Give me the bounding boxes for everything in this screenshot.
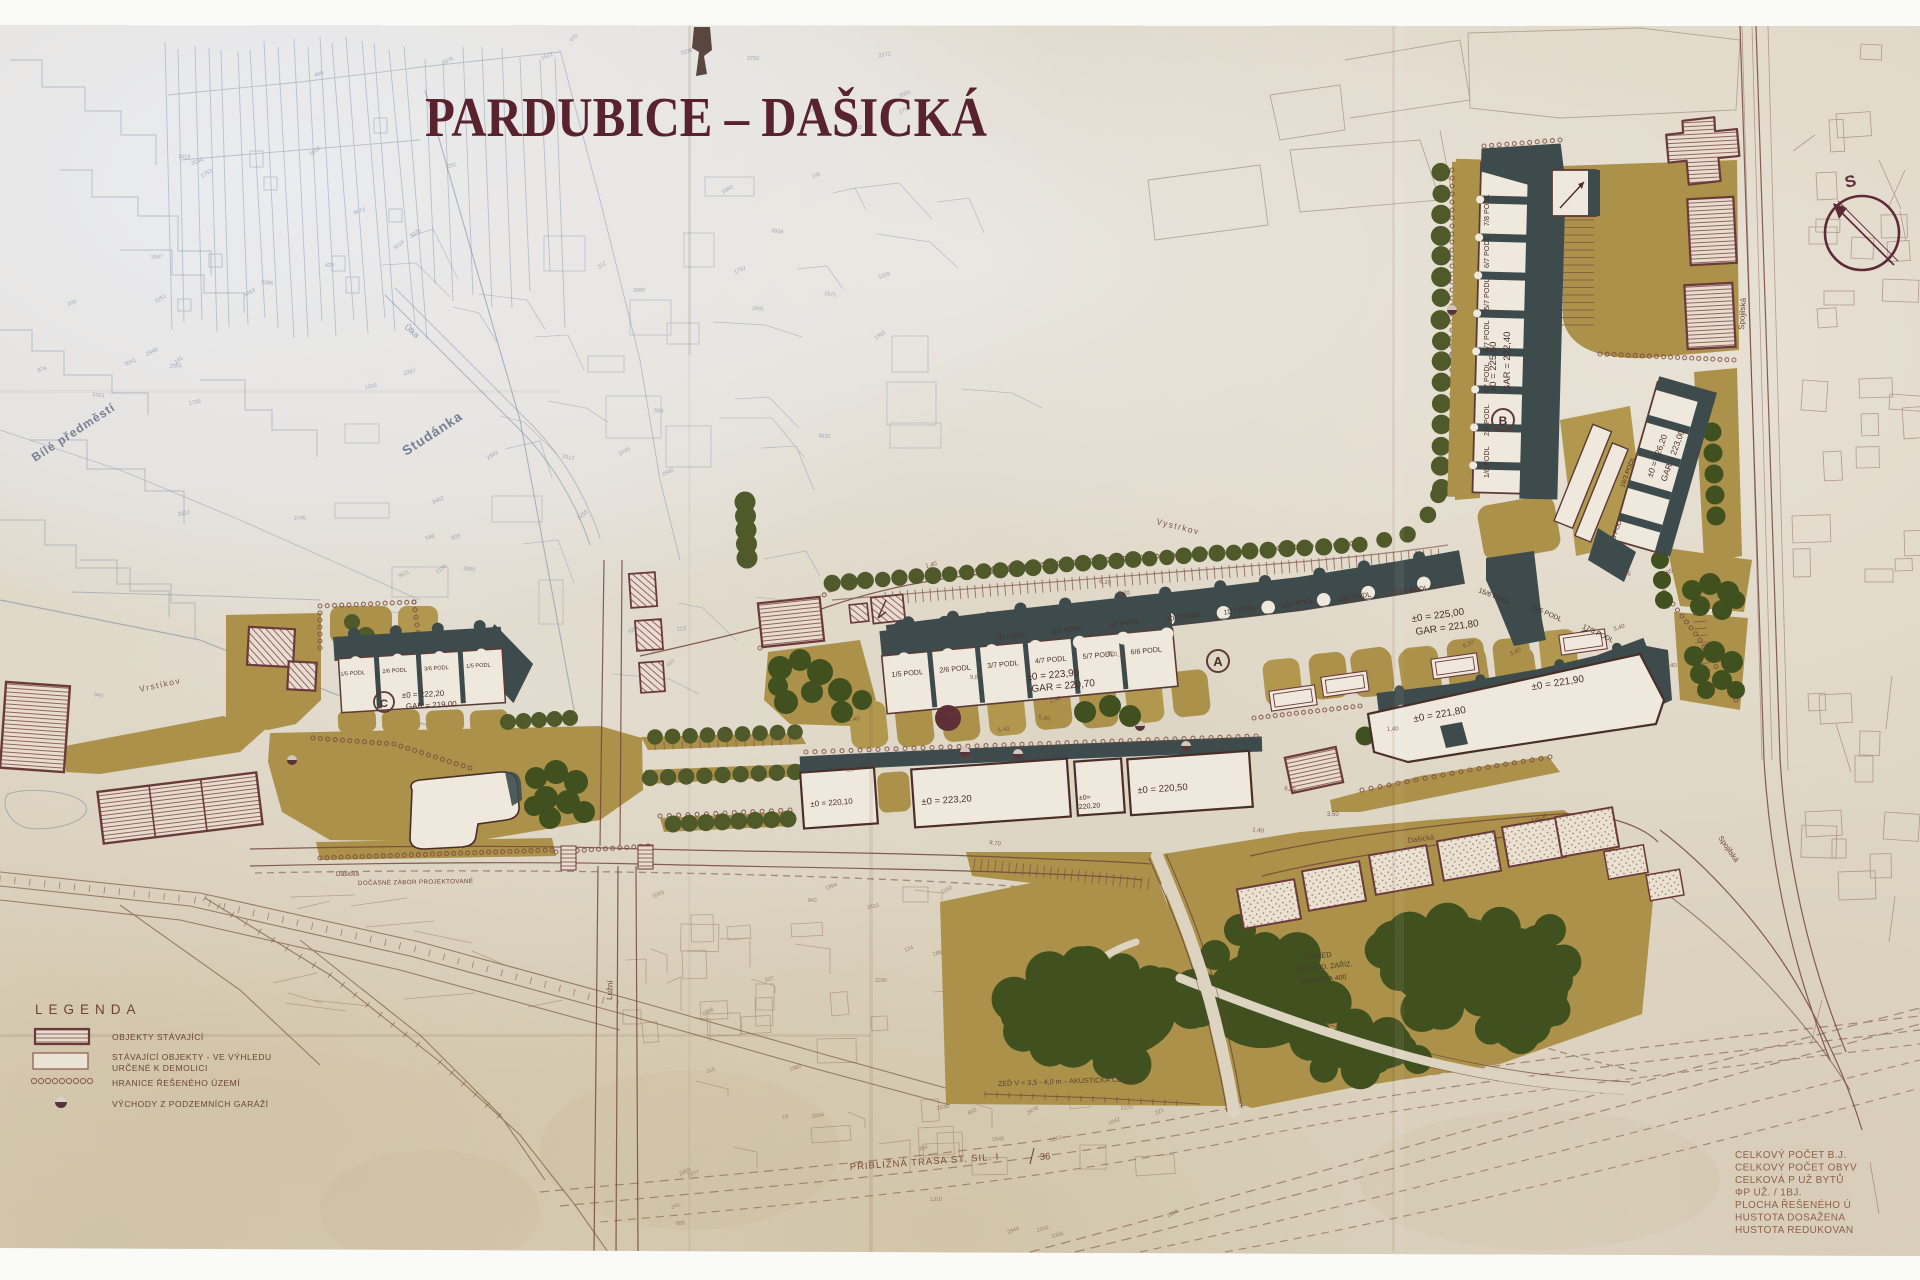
svg-text:LEGENDA: LEGENDA: [35, 1002, 142, 1017]
svg-text:2686: 2686: [633, 288, 645, 294]
svg-text:1/6 PODL: 1/6 PODL: [1482, 446, 1491, 478]
svg-text:2991: 2991: [752, 306, 764, 312]
svg-text:9,85: 9,85: [970, 675, 983, 681]
svg-text:429: 429: [325, 262, 335, 269]
svg-text:HUSTOTA DOSAŽENA: HUSTOTA DOSAŽENA: [1735, 1211, 1846, 1224]
svg-text:2745: 2745: [294, 515, 307, 522]
svg-text:3,50: 3,50: [1327, 812, 1339, 818]
svg-text:URČENÉ K DEMOLICI: URČENÉ K DEMOLICI: [112, 1063, 208, 1073]
svg-text:2547: 2547: [151, 254, 164, 261]
svg-text:PARDUBICE – DAŠICKÁ: PARDUBICE – DAŠICKÁ: [425, 86, 987, 149]
svg-text:1,40: 1,40: [848, 716, 861, 723]
svg-text:B: B: [1499, 414, 1508, 428]
svg-text:Lužní: Lužní: [605, 979, 615, 1000]
svg-text:3/7 PODL: 3/7 PODL: [1482, 362, 1491, 394]
svg-text:PLOCHA ŘEŠENÉHO Ú: PLOCHA ŘEŠENÉHO Ú: [1735, 1198, 1851, 1211]
svg-text:5/7 PODL: 5/7 PODL: [1482, 278, 1491, 310]
svg-text:OBJEKTY STÁVAJÍCÍ: OBJEKTY STÁVAJÍCÍ: [112, 1032, 204, 1042]
svg-text:2/7 PODL: 2/7 PODL: [1482, 404, 1491, 436]
svg-text:6/7 PODL: 6/7 PODL: [1482, 236, 1491, 268]
svg-text:220,20: 220,20: [1079, 803, 1101, 811]
svg-text:9,70: 9,70: [1118, 591, 1130, 597]
svg-text:7/8 PODL: 7/8 PODL: [1482, 194, 1491, 226]
svg-text:CELKOVÝ POČET OBYV: CELKOVÝ POČET OBYV: [1735, 1161, 1857, 1174]
svg-text:1613: 1613: [178, 154, 191, 161]
svg-text:Dašická: Dašická: [336, 871, 360, 878]
svg-text:1,40: 1,40: [1665, 663, 1677, 669]
svg-text:2290: 2290: [875, 978, 887, 984]
svg-text:GAR = 222,40: GAR = 222,40: [1502, 332, 1513, 392]
svg-text:VÝCHODY Z PODZEMNÍCH GARÁŽÍ: VÝCHODY Z PODZEMNÍCH GARÁŽÍ: [112, 1099, 269, 1109]
svg-text:1645: 1645: [992, 1136, 1005, 1143]
svg-text:223: 223: [677, 626, 687, 633]
svg-text:HRANICE ŘEŠENÉHO ÚZEMÍ: HRANICE ŘEŠENÉHO ÚZEMÍ: [112, 1078, 240, 1088]
svg-text:4/7 PODL: 4/7 PODL: [1482, 320, 1491, 352]
svg-text:1310: 1310: [930, 1197, 942, 1203]
svg-text:1423: 1423: [92, 392, 105, 399]
svg-text:3750: 3750: [747, 56, 759, 62]
svg-text:942: 942: [808, 897, 818, 904]
svg-text:HUSTOTA REDUKOVAN: HUSTOTA REDUKOVAN: [1735, 1225, 1854, 1236]
svg-text:±0=: ±0=: [1079, 794, 1091, 802]
svg-text:36: 36: [1039, 1151, 1050, 1163]
svg-text:A: A: [1213, 654, 1223, 669]
svg-text:3,50: 3,50: [1530, 818, 1543, 824]
svg-text:2286: 2286: [261, 280, 274, 287]
svg-text:3032: 3032: [818, 433, 831, 440]
svg-text:3950: 3950: [463, 566, 476, 573]
svg-text:C: C: [380, 698, 388, 710]
svg-text:CELKOVÁ P UŽ BYTŮ: CELKOVÁ P UŽ BYTŮ: [1735, 1173, 1844, 1186]
svg-text:1,40: 1,40: [1387, 726, 1400, 733]
svg-text:ΦP UŽ. / 1BJ.: ΦP UŽ. / 1BJ.: [1735, 1186, 1802, 1199]
svg-text:559: 559: [654, 408, 664, 415]
svg-text:Spojilská: Spojilská: [1737, 297, 1748, 330]
svg-text:CELKOVÝ POČET B.J.: CELKOVÝ POČET B.J.: [1735, 1148, 1847, 1161]
svg-text:STÁVAJÍCÍ OBJEKTY - VE VÝHLEDU: STÁVAJÍCÍ OBJEKTY - VE VÝHLEDU: [112, 1052, 272, 1062]
